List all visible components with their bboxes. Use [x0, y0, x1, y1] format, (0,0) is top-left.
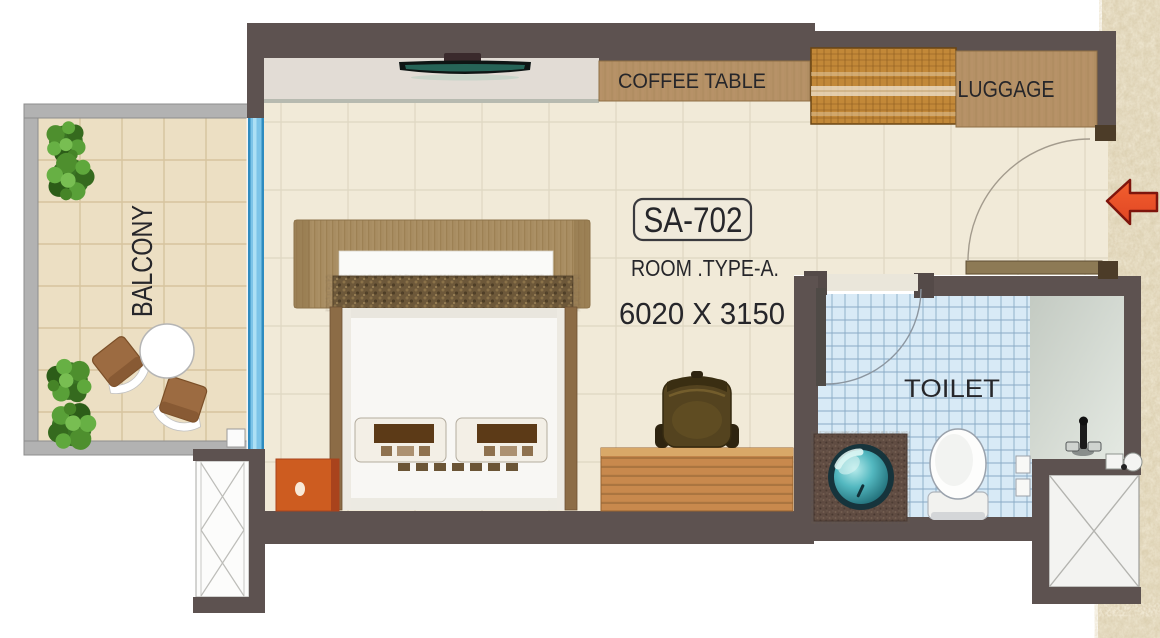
svg-text:ROOM .TYPE-A.: ROOM .TYPE-A.: [631, 255, 779, 281]
svg-text:COFFEE TABLE: COFFEE TABLE: [618, 70, 766, 93]
svg-text:LUGGAGE: LUGGAGE: [958, 76, 1055, 102]
svg-text:TOILET: TOILET: [904, 375, 1000, 403]
svg-text:6020 X 3150: 6020 X 3150: [619, 296, 785, 331]
svg-text:BALCONY: BALCONY: [127, 205, 159, 317]
svg-text:SA-702: SA-702: [644, 201, 743, 240]
